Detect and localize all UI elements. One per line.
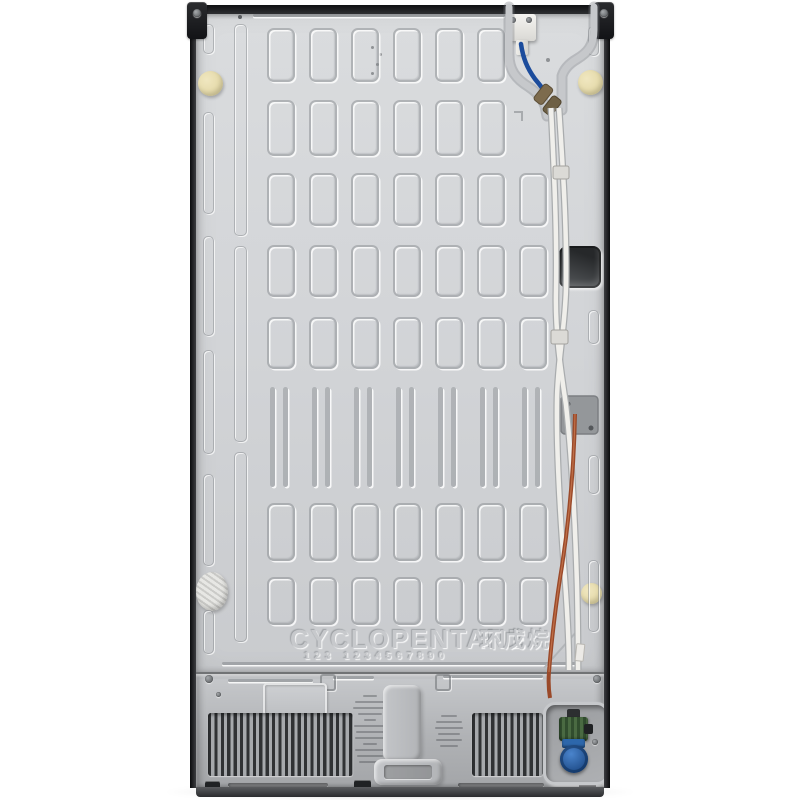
embossed-text-line — [436, 739, 462, 741]
cover-ridge — [333, 676, 374, 679]
bracket-screw-right — [600, 9, 608, 17]
panel-emboss-slat — [270, 387, 275, 487]
compressor-cover — [196, 672, 604, 789]
panel-emboss-slat — [367, 387, 372, 487]
panel-emboss-cell — [519, 503, 547, 561]
embossed-text-line — [363, 695, 377, 697]
cover-screw-right — [593, 675, 601, 683]
center-base-slot — [384, 765, 432, 779]
panel-emboss-cell — [519, 245, 547, 297]
cover-screw-left — [205, 675, 213, 683]
regulatory-text-right — [434, 715, 464, 753]
panel-emboss-cell — [309, 317, 337, 369]
panel-emboss-cell — [519, 317, 547, 369]
panel-rail-segment — [588, 310, 599, 344]
left-edge-trim — [190, 12, 196, 788]
embossed-text-line — [355, 701, 385, 703]
panel-emboss-cell — [477, 28, 505, 82]
panel-emboss-cell — [435, 100, 463, 156]
panel-emboss-slat — [493, 387, 498, 487]
bottom-groove — [222, 662, 578, 665]
cushion-pad-top-left — [198, 71, 223, 96]
panel-emboss-cell — [477, 577, 505, 625]
embossed-text-line — [440, 745, 458, 747]
refrigerant-label-cn: 环戊烷 — [480, 630, 552, 651]
cover-tab — [435, 674, 451, 691]
panel-emboss-cell — [477, 503, 505, 561]
vent-grille-left — [208, 713, 353, 776]
panel-rail-segment — [203, 474, 214, 566]
panel-emboss-slat — [409, 387, 414, 487]
panel-emboss-cell — [435, 173, 463, 226]
panel-emboss-slat — [451, 387, 456, 487]
rivet-dot — [238, 15, 242, 19]
panel-emboss-cell — [309, 28, 337, 82]
panel-emboss-cell — [393, 577, 421, 625]
base-trim — [196, 787, 604, 797]
embossed-text-line — [364, 719, 376, 721]
junction-box-cover — [263, 683, 327, 716]
panel-emboss-cell — [351, 503, 379, 561]
panel-emboss-cell — [435, 245, 463, 297]
hinge-bracket-left — [187, 2, 207, 39]
panel-emboss-cell — [351, 173, 379, 226]
panel-rail-segment — [588, 455, 599, 494]
panel-emboss-cell — [477, 173, 505, 226]
water-valve-recess — [543, 702, 609, 785]
refrigerator-back-photo: CYCLOPENTANE 环戊烷 123 1234567890 — [0, 0, 800, 800]
panel-emboss-cell — [267, 317, 295, 369]
panel-rail-segment — [203, 350, 214, 454]
panel-rail-segment — [234, 24, 247, 236]
panel-emboss-cell — [477, 100, 505, 156]
panel-emboss-slat — [480, 387, 485, 487]
inlet-bracket-screw-right — [526, 17, 532, 23]
panel-rail-segment — [203, 236, 214, 336]
panel-emboss-cell — [393, 28, 421, 82]
embossed-text-line — [441, 715, 457, 717]
embossed-text-line — [436, 721, 462, 723]
embossed-text-line — [363, 743, 377, 745]
panel-emboss-cell — [351, 100, 379, 156]
panel-emboss-cell — [267, 503, 295, 561]
top-groove — [253, 14, 505, 17]
panel-rail-segment — [203, 112, 214, 214]
panel-emboss-cell — [435, 577, 463, 625]
service-opening — [559, 246, 601, 288]
cushion-pad-top-right — [578, 70, 603, 95]
panel-emboss-cell — [393, 173, 421, 226]
embossed-text-line — [435, 727, 463, 729]
back-panel: CYCLOPENTANE 环戊烷 123 1234567890 — [196, 13, 604, 672]
panel-emboss-cell — [519, 173, 547, 226]
cover-ridge — [228, 679, 313, 682]
embossed-text-line — [356, 731, 384, 733]
panel-emboss-slat — [283, 387, 288, 487]
panel-emboss-cell — [267, 100, 295, 156]
panel-emboss-cell — [477, 317, 505, 369]
embossed-text-line — [357, 755, 383, 757]
panel-emboss-slat — [438, 387, 443, 487]
vent-grille-right — [472, 713, 543, 776]
hinge-bracket-right — [594, 2, 614, 39]
panel-emboss-cell — [309, 173, 337, 226]
panel-emboss-cell — [351, 577, 379, 625]
embossed-text-line — [438, 733, 460, 735]
panel-emboss-cell — [393, 100, 421, 156]
panel-emboss-cell — [309, 577, 337, 625]
panel-emboss-cell — [435, 317, 463, 369]
panel-emboss-cell — [351, 245, 379, 297]
panel-emboss-cell — [309, 245, 337, 297]
foam-pad-bottom-left — [196, 572, 228, 611]
panel-emboss-cell — [267, 173, 295, 226]
panel-emboss-cell — [267, 28, 295, 82]
panel-emboss-cell — [267, 577, 295, 625]
panel-emboss-cell — [267, 245, 295, 297]
panel-emboss-slat — [354, 387, 359, 487]
panel-rail-segment — [203, 610, 214, 654]
embossed-text-line — [355, 749, 385, 751]
panel-emboss-cell — [435, 503, 463, 561]
panel-emboss-cell — [477, 245, 505, 297]
panel-emboss-cell — [393, 503, 421, 561]
water-inlet-connector — [516, 40, 528, 55]
water-valve-cap — [560, 745, 588, 773]
embossed-text-line — [358, 713, 382, 715]
serial-digits: 123 1234567890 — [304, 652, 449, 662]
panel-emboss-slat — [396, 387, 401, 487]
embossed-text-line — [353, 707, 387, 709]
valve-recess-screw — [592, 739, 598, 745]
valve-clamp — [584, 724, 593, 734]
panel-emboss-cell — [393, 245, 421, 297]
rivet-dot — [379, 53, 382, 56]
panel-rail-segment — [234, 452, 247, 642]
panel-emboss-slat — [535, 387, 540, 487]
panel-rail-segment — [588, 560, 599, 632]
panel-emboss-cell — [435, 28, 463, 82]
center-cover-column — [383, 685, 421, 761]
water-inlet-bracket — [507, 14, 536, 41]
panel-emboss-cell — [309, 503, 337, 561]
cover-ridge — [443, 675, 543, 678]
right-edge-trim — [604, 12, 610, 788]
panel-emboss-slat — [522, 387, 527, 487]
top-edge-trim — [192, 5, 608, 14]
cover-screw-small — [216, 692, 221, 697]
inlet-bracket-screw-left — [510, 17, 516, 23]
panel-emboss-slat — [312, 387, 317, 487]
panel-emboss-cell — [519, 577, 547, 625]
rivet-dot — [546, 58, 550, 62]
embossed-text-line — [355, 737, 385, 739]
panel-rail-segment — [234, 246, 247, 442]
bracket-screw-left — [193, 9, 201, 17]
embossed-text-line — [354, 725, 387, 727]
panel-emboss-slat — [325, 387, 330, 487]
panel-emboss-cell — [351, 28, 379, 82]
panel-emboss-cell — [309, 100, 337, 156]
panel-emboss-cell — [393, 317, 421, 369]
panel-emboss-cell — [351, 317, 379, 369]
